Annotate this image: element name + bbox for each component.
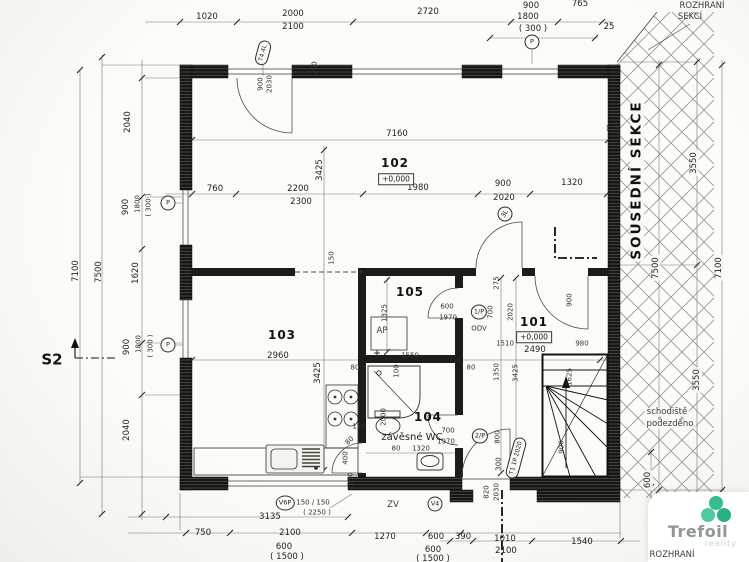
dim-label: 80 [467, 365, 476, 372]
reference-marker: P [525, 35, 540, 50]
dim-label: 7160 [386, 130, 408, 139]
dim-label: 3135 [259, 513, 281, 522]
dim-label: 2720 [417, 8, 439, 17]
dim-label: 100 [394, 364, 401, 377]
dim-label: ( 300 ) [148, 334, 155, 357]
dim-label: 250 [312, 61, 319, 74]
dim-label: 1980 [407, 184, 429, 193]
reference-marker: V4 [428, 497, 443, 512]
washbasin [417, 453, 443, 470]
dim-label: 3425 [513, 364, 520, 382]
dim-label: schodiště [645, 408, 689, 417]
dim-label: ( 300 ) [519, 25, 547, 34]
dim-label: 600 [440, 304, 453, 311]
dim-label: ( 2250 ) [303, 510, 331, 517]
dim-label: 1350 [494, 363, 501, 381]
dim-label: 7500 [652, 255, 661, 281]
dim-label: 1320 [412, 446, 430, 453]
dim-label: 900 [258, 77, 265, 90]
dim-label: 900 [495, 180, 511, 189]
dim-label: 1540 [571, 538, 593, 547]
dim-label: 2040 [123, 419, 132, 441]
dim-label: SEKCÍ [678, 13, 702, 22]
dim-label: 2000 [381, 408, 388, 426]
dim-label: ODV [471, 326, 487, 333]
dim-label: 1800 [135, 195, 142, 213]
room-number: 101 [520, 315, 548, 329]
dim-label: 150 / 150 [296, 500, 330, 507]
dim-label: 3425 [314, 362, 323, 384]
dim-label: 2100 [282, 23, 304, 32]
dim-label: 2020 [493, 194, 515, 203]
dim-label: 80 [392, 446, 401, 453]
dim-label: 1510 [496, 341, 514, 348]
dim-label: 2960 [267, 352, 289, 361]
dim-label: 7100 [715, 255, 724, 281]
dim-label: 2030 [267, 75, 274, 93]
dim-label: 125 [605, 126, 618, 133]
dim-label: 150 [352, 424, 365, 431]
dim-label: 2100 [279, 529, 301, 538]
dim-label: 1270 [374, 533, 396, 542]
dim-label: ROZHRANÍ [649, 551, 694, 560]
floor-level-badge: +0,000 [516, 331, 552, 343]
dim-label: 80 [351, 365, 360, 372]
dim-label: 900 [523, 2, 539, 11]
dim-label: podezděno [645, 420, 696, 429]
dim-label: 3550 [693, 367, 702, 393]
floorplan-canvas: Trefoil reality 102020002100272090076518… [0, 0, 749, 562]
dim-label: 765 [572, 0, 588, 8]
dim-label: 2100 [495, 547, 517, 556]
kitchen-counter-sink [194, 445, 358, 475]
dim-label: 900 [567, 293, 574, 306]
washer-box [371, 317, 407, 356]
dim-label: 800 [495, 430, 502, 443]
reference-marker: P [161, 196, 176, 211]
scanned-floorplan-page: { "logo": {"name": "Trefoil", "tagline":… [0, 0, 749, 562]
dim-label: 25 [604, 23, 615, 32]
reference-marker: V6P [276, 496, 295, 511]
door-arcs [237, 78, 588, 477]
room-number: 102 [381, 156, 409, 170]
dim-label: závěsné WC [381, 433, 442, 443]
staircase [542, 354, 608, 477]
reference-marker: P [161, 338, 176, 353]
section-line [71, 227, 597, 562]
dim-label: 1970 [439, 315, 457, 322]
dim-label: 3425 [316, 159, 325, 181]
dim-label: 7100 [72, 260, 81, 282]
dim-label: 2300 [290, 198, 312, 207]
dim-label: 300 [496, 457, 503, 470]
dim-label: 7500 [95, 261, 104, 283]
dim-label: 980 [575, 341, 588, 348]
dim-label: 900 [559, 440, 566, 453]
dim-label: 700 [488, 305, 495, 318]
dim-label: 2000 [282, 10, 304, 19]
dim-label: 1020 [196, 13, 218, 22]
dim-label: 2490 [524, 346, 546, 355]
dim-label: 1800 [136, 335, 143, 353]
dim-label: 820 [484, 485, 491, 498]
dim-label: 900 [123, 339, 132, 355]
dim-label: 760 [207, 185, 223, 194]
dim-label: AP [377, 327, 388, 336]
room-number: 105 [396, 285, 424, 299]
floorplan-drawing [0, 0, 749, 562]
dim-label: S2 [41, 353, 62, 368]
floor-level-badge: +0,000 [378, 173, 414, 185]
dim-label: 1800 [517, 13, 539, 22]
dim-label: 600 [428, 533, 444, 542]
room-number: 103 [268, 328, 296, 342]
dim-label: 900 [122, 199, 131, 215]
dim-label: 2040 [124, 111, 133, 133]
dim-label: 1625 [567, 368, 574, 386]
dim-label: 1010 [494, 535, 516, 544]
dim-label: ( 300 ) [146, 193, 153, 216]
trefoil-icon [694, 495, 738, 525]
dim-label: 3550 [690, 150, 699, 176]
dim-label: 600 [276, 543, 292, 552]
dim-label: 275 [494, 276, 501, 289]
dim-label: 700 [441, 428, 454, 435]
dim-label: 250 [348, 472, 355, 485]
dim-label: 750 [195, 529, 211, 538]
dim-label: ( 1500 ) [270, 553, 304, 562]
dim-label: ROZHRANÍ [679, 2, 724, 11]
dim-label: ( 1500 ) [416, 555, 450, 562]
dim-label: 1320 [561, 179, 583, 188]
room-number: 104 [414, 410, 442, 424]
dim-label: 600 [644, 470, 653, 490]
dim-label: 2030 [494, 483, 501, 501]
dim-label: 1620 [132, 262, 141, 284]
dim-label: 400 [343, 451, 350, 464]
dim-label: 2200 [287, 185, 309, 194]
dim-label: 1325 [382, 304, 389, 322]
dim-label: 2020 [508, 303, 515, 321]
dim-label: 150 [329, 251, 336, 264]
dim-label: ZV [387, 501, 399, 510]
dim-label: SOUSEDNÍ SEKCE [630, 98, 644, 261]
logo-tagline: reality [705, 539, 737, 548]
dim-label: 1550 [401, 353, 419, 360]
dim-label: 390 [455, 533, 471, 542]
